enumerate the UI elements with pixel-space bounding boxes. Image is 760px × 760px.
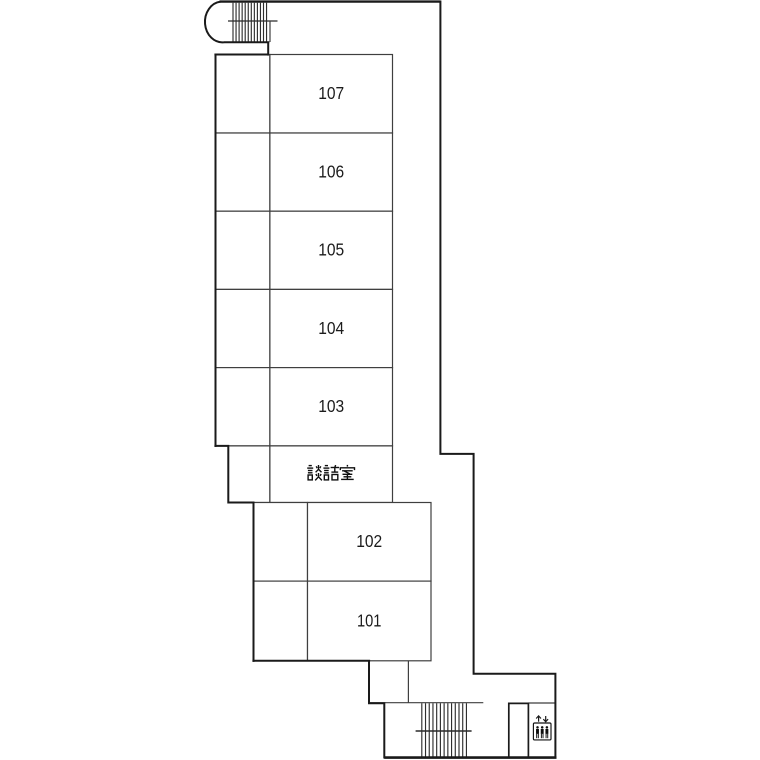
svg-text:106: 106 — [318, 162, 344, 182]
svg-text:107: 107 — [318, 83, 344, 103]
svg-text:103: 103 — [318, 396, 344, 416]
svg-text:102: 102 — [356, 531, 382, 551]
svg-text:105: 105 — [318, 240, 344, 260]
svg-text:104: 104 — [318, 318, 344, 338]
svg-text:101: 101 — [357, 610, 382, 630]
